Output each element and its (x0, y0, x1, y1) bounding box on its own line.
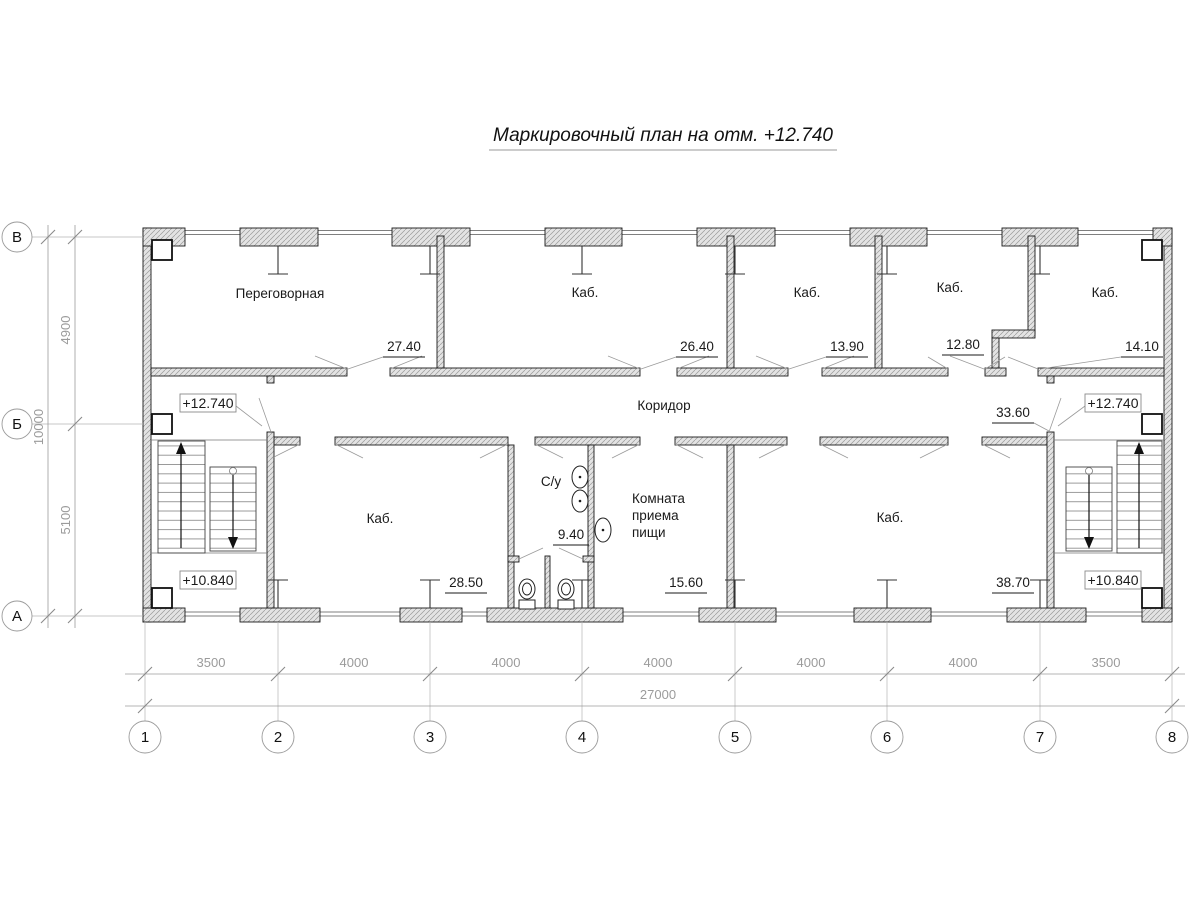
room-label-komnata-line2: приема (632, 508, 679, 523)
room-label-kab-top-5: Каб. (1092, 285, 1119, 300)
room-label-komnata-line1: Комната (632, 491, 685, 506)
bottom-axis-bubbles: 1 2 3 4 5 6 7 8 (129, 721, 1188, 753)
area-komnata: 15.60 (669, 575, 703, 590)
room-label-corridor: Коридор (637, 398, 690, 413)
elevation-lower-right: +10.840 (1088, 572, 1139, 588)
drawing-sheet: Маркировочный план на отм. +12.740 (0, 0, 1200, 900)
elevation-upper-right: +12.740 (1088, 395, 1139, 411)
axis-bubble-3: 3 (426, 729, 434, 746)
area-kab-top-5: 14.10 (1125, 339, 1159, 354)
axis-bubble-a: А (12, 608, 22, 625)
dim-3-4: 4000 (492, 655, 521, 670)
dim-left-5100: 5100 (58, 506, 73, 535)
axis-bubble-7: 7 (1036, 729, 1044, 746)
room-label-kab-bottom-right: Каб. (877, 510, 904, 525)
dim-2-3: 4000 (340, 655, 369, 670)
floor-plan-svg: Маркировочный план на отм. +12.740 (0, 0, 1200, 900)
sink (572, 490, 588, 512)
left-dimensions: 4900 5100 10000 (31, 225, 143, 628)
sink (572, 466, 588, 488)
elevation-lower-left: +10.840 (183, 572, 234, 588)
room-label-kab-bottom-left: Каб. (367, 511, 394, 526)
stair-left (151, 440, 267, 553)
toilet (519, 579, 535, 609)
axis-bubble-8: 8 (1168, 729, 1176, 746)
room-label-kab-top-3: Каб. (794, 285, 821, 300)
dim-7-8: 3500 (1092, 655, 1121, 670)
area-kab-bottom-left: 28.50 (449, 575, 483, 590)
area-kab-bottom-right: 38.70 (996, 575, 1030, 590)
area-peregovornaya: 27.40 (387, 339, 421, 354)
room-label-kab-top-2: Каб. (572, 285, 599, 300)
axis-bubble-4: 4 (578, 729, 586, 746)
sink (595, 518, 611, 542)
dim-6-7: 4000 (949, 655, 978, 670)
stair-right (1054, 440, 1164, 553)
axis-bubble-5: 5 (731, 729, 739, 746)
area-sanuzel: 9.40 (558, 527, 584, 542)
dim-total-27000: 27000 (640, 687, 676, 702)
axis-bubble-1: 1 (141, 729, 149, 746)
room-label-sanuzel: С/у (541, 474, 562, 489)
dim-left-4900: 4900 (58, 316, 73, 345)
dim-1-2: 3500 (197, 655, 226, 670)
area-corridor: 33.60 (996, 405, 1030, 420)
room-label-komnata-line3: пищи (632, 525, 666, 540)
bottom-dimensions: 3500 4000 4000 4000 4000 4000 3500 27000 (125, 622, 1185, 721)
axis-bubble-b: Б (12, 416, 22, 433)
axis-bubble-6: 6 (883, 729, 891, 746)
area-kab-top-4: 12.80 (946, 337, 980, 352)
axis-bubble-v: В (12, 229, 22, 246)
left-axis-bubbles: В Б А (2, 222, 32, 631)
elevation-upper-left: +12.740 (183, 395, 234, 411)
dim-5-6: 4000 (797, 655, 826, 670)
area-kab-top-3: 13.90 (830, 339, 864, 354)
room-label-peregovornaya: Переговорная (236, 286, 325, 301)
room-labels: Переговорная Каб. Каб. Каб. Каб. Коридор… (236, 280, 1119, 540)
dim-left-total-10000: 10000 (31, 409, 46, 445)
axis-bubble-2: 2 (274, 729, 282, 746)
plan-title: Маркировочный план на отм. +12.740 (493, 125, 833, 146)
toilet (558, 579, 574, 609)
area-kab-top-2: 26.40 (680, 339, 714, 354)
room-label-kab-top-4: Каб. (937, 280, 964, 295)
dim-4-5: 4000 (644, 655, 673, 670)
